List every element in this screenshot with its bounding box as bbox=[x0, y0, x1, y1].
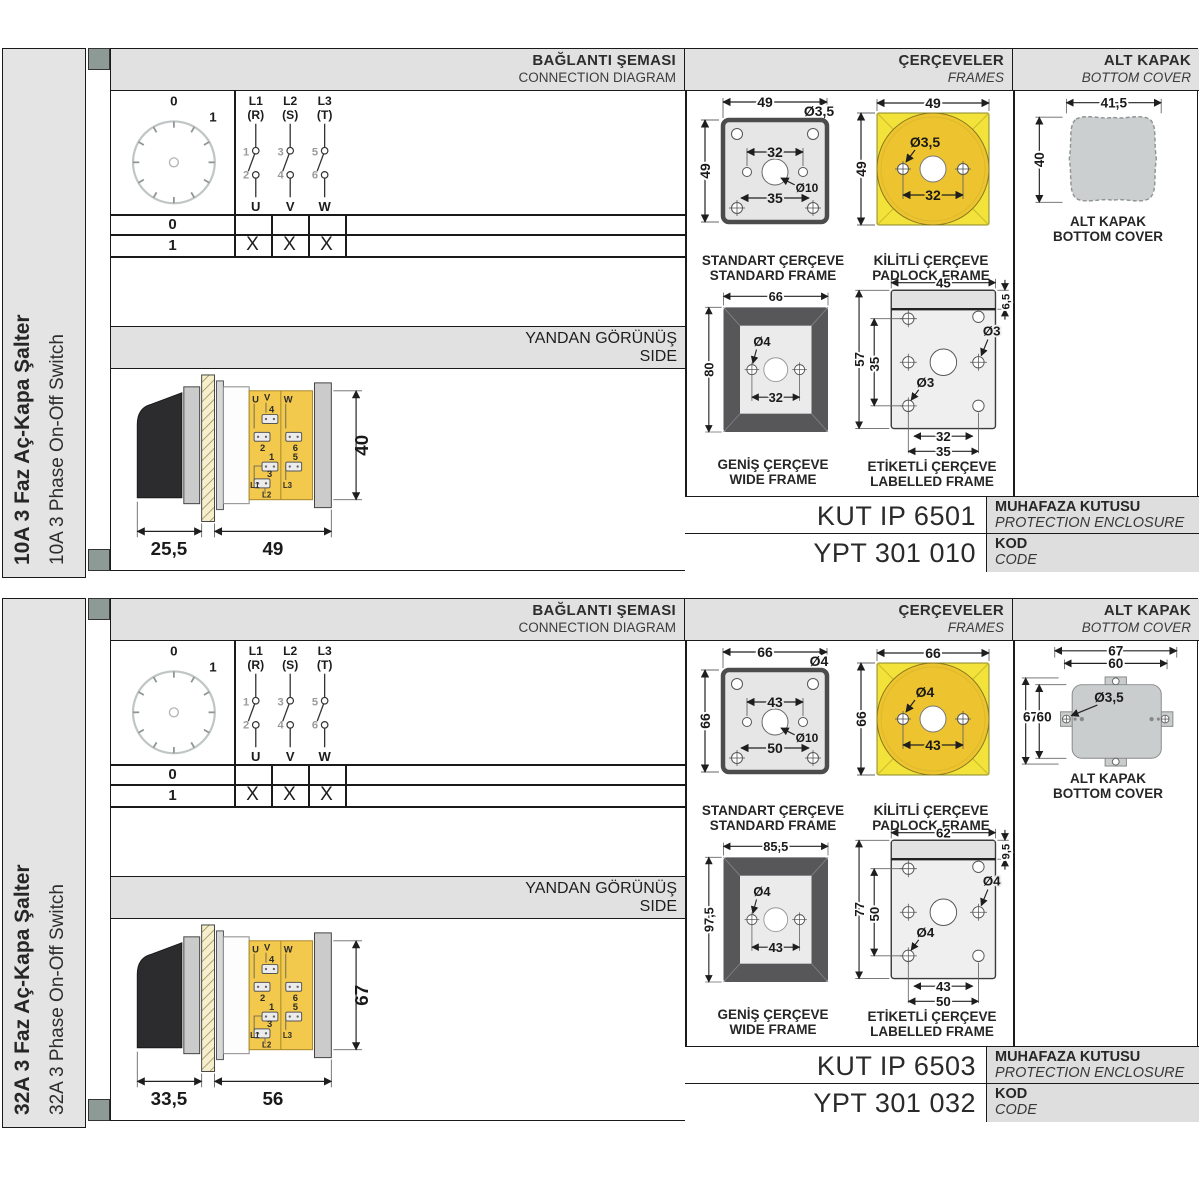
caption-en: LABELLED FRAME bbox=[847, 1024, 1017, 1039]
dim-slot: 50 bbox=[936, 994, 951, 1007]
table-cell bbox=[308, 764, 345, 784]
dial-drawing: 0 1 bbox=[113, 93, 233, 213]
dim-pitch: 43 bbox=[925, 737, 941, 753]
table-cell: X bbox=[271, 784, 308, 806]
caption-en: WIDE FRAME bbox=[693, 472, 853, 487]
bottom-cover-drawing: 41,5 40 bbox=[1016, 94, 1200, 212]
caption-tr: ETİKETLİ ÇERÇEVE bbox=[847, 1009, 1017, 1024]
dim-hole: Ø4 bbox=[983, 874, 1001, 889]
dim-width: 85,5 bbox=[763, 839, 788, 854]
terminal-label: L1 bbox=[250, 1031, 260, 1040]
label-tr: MUHAFAZA KUTUSU bbox=[995, 499, 1199, 515]
table-cell bbox=[271, 764, 308, 784]
dim-slot: 35 bbox=[936, 444, 951, 457]
phase-name: L1 bbox=[249, 94, 263, 108]
terminal-number: 1 bbox=[243, 146, 249, 158]
dim-hole: Ø4 bbox=[753, 334, 771, 349]
standard-frame-drawing: 49 Ø3,5 32 Ø10 35 49 bbox=[693, 94, 853, 244]
terminal-label: V bbox=[264, 942, 271, 953]
labelled-frame-drawing: 62 9,5 77 50 Ø4 Ø4 43 50 bbox=[847, 827, 1017, 1007]
dim-hole: Ø4 bbox=[916, 684, 935, 700]
dim-height: 97,5 bbox=[701, 907, 716, 932]
dim-pitch: 32 bbox=[769, 390, 783, 405]
dim-width: 62 bbox=[936, 827, 951, 840]
section-header-cover: ALT KAPAK BOTTOM COVER bbox=[1013, 599, 1199, 641]
phase-name: L2 bbox=[283, 94, 297, 108]
binder-tab bbox=[88, 598, 110, 620]
phase-alt: (S) bbox=[282, 658, 298, 672]
header-en: SIDE bbox=[111, 898, 677, 916]
table-row-label: 1 bbox=[111, 784, 234, 806]
dim-strip: 9,5 bbox=[1001, 844, 1013, 860]
caption-tr: GENİŞ ÇERÇEVE bbox=[693, 1007, 853, 1022]
dim-height: 66 bbox=[697, 713, 713, 729]
section-header-connection: BAĞLANTI ŞEMASI CONNECTION DIAGRAM bbox=[111, 599, 685, 641]
table-cell bbox=[234, 214, 271, 234]
load-label: U bbox=[251, 749, 260, 764]
dim-width: 66 bbox=[769, 289, 783, 304]
dim-pitch: 43 bbox=[936, 979, 951, 994]
dim-height: 49 bbox=[853, 161, 869, 177]
terminal-number: 3 bbox=[277, 146, 283, 158]
dim-hole: Ø4 bbox=[753, 884, 771, 899]
caption-tr: ETİKETLİ ÇERÇEVE bbox=[847, 459, 1017, 474]
dim-slot: 50 bbox=[767, 740, 783, 756]
terminal-label: L3 bbox=[283, 481, 293, 490]
wide-frame-drawing: 85,5 Ø4 43 97,5 bbox=[693, 839, 853, 1004]
terminal-number: 2 bbox=[243, 170, 249, 182]
header-en: FRAMES bbox=[685, 620, 1004, 635]
table-line bbox=[345, 214, 347, 256]
load-label: V bbox=[286, 749, 295, 764]
terminal-label: L3 bbox=[283, 1031, 293, 1040]
code-value: YPT 301 010 bbox=[685, 534, 986, 572]
terminal-label: V bbox=[264, 392, 271, 403]
caption-en: BOTTOM COVER bbox=[1016, 229, 1200, 244]
phase-alt: (R) bbox=[247, 658, 264, 672]
header-en: BOTTOM COVER bbox=[1013, 70, 1191, 85]
table-line bbox=[345, 764, 347, 806]
header-tr: ÇERÇEVELER bbox=[685, 602, 1004, 619]
table-cell bbox=[234, 764, 271, 784]
code-label: KOD CODE bbox=[986, 1084, 1199, 1122]
table-cell: X bbox=[234, 784, 271, 806]
table-cell bbox=[308, 214, 345, 234]
table-row-label: 1 bbox=[111, 234, 234, 256]
dim-handle: 33,5 bbox=[151, 1088, 188, 1109]
dim-height: 67 bbox=[351, 985, 372, 1006]
dim-center-hole: Ø10 bbox=[796, 731, 819, 745]
phase-alt: (R) bbox=[247, 108, 264, 122]
terminal-number: 5 bbox=[312, 696, 318, 708]
dim-width-inner: 60 bbox=[1108, 656, 1123, 671]
code-row: YPT 301 010 KOD CODE bbox=[685, 533, 1199, 572]
enclosure-label: MUHAFAZA KUTUSU PROTECTION ENCLOSURE bbox=[986, 497, 1199, 533]
sidebar-product-label: 10A 3 Faz Aç-Kapa Şalter 10A 3 Phase On-… bbox=[2, 48, 86, 578]
dim-pitch: 32 bbox=[936, 429, 951, 444]
frame-caption: ETİKETLİ ÇERÇEVE LABELLED FRAME bbox=[847, 1009, 1017, 1039]
binder-tab bbox=[88, 1099, 110, 1121]
caption-en: LABELLED FRAME bbox=[847, 474, 1017, 489]
terminal-label: 1 bbox=[269, 1001, 274, 1012]
dim-height: 40 bbox=[1032, 152, 1047, 167]
terminal-label: L2 bbox=[262, 491, 272, 500]
product-title-en: 32A 3 Phase On-Off Switch bbox=[47, 599, 69, 1127]
phase-name: L3 bbox=[318, 94, 332, 108]
wide-frame-drawing: 66 Ø4 32 80 bbox=[693, 289, 853, 454]
terminal-label: 2 bbox=[260, 992, 265, 1003]
enclosure-row: KUT IP 6503 MUHAFAZA KUTUSU PROTECTION E… bbox=[685, 1046, 1199, 1083]
header-en: SIDE bbox=[111, 348, 677, 366]
code-row: YPT 301 032 KOD CODE bbox=[685, 1083, 1199, 1122]
table-line bbox=[111, 256, 685, 258]
frame-caption: GENİŞ ÇERÇEVE WIDE FRAME bbox=[693, 1007, 853, 1037]
header-en: BOTTOM COVER bbox=[1013, 620, 1191, 635]
terminal-label: 2 bbox=[260, 442, 265, 453]
product-title-tr: 10A 3 Faz Aç-Kapa Şalter bbox=[11, 49, 35, 577]
phase-alt: (S) bbox=[282, 108, 298, 122]
dim-pitch: 43 bbox=[767, 694, 783, 710]
header-tr: ALT KAPAK bbox=[1013, 602, 1191, 619]
label-tr: MUHAFAZA KUTUSU bbox=[995, 1049, 1199, 1065]
terminal-number: 4 bbox=[277, 720, 284, 732]
dim-width: 66 bbox=[757, 644, 773, 660]
dim-hole: Ø4 bbox=[917, 925, 935, 940]
dim-hole: Ø3 bbox=[917, 375, 935, 390]
standard-frame-drawing: 66 Ø4 43 Ø10 50 66 bbox=[693, 644, 853, 794]
dim-center-hole: Ø10 bbox=[796, 181, 819, 195]
load-label: W bbox=[318, 749, 331, 764]
dim-body: 56 bbox=[262, 1088, 283, 1109]
terminal-number: 6 bbox=[312, 170, 318, 182]
load-label: V bbox=[286, 199, 295, 214]
terminal-label: L2 bbox=[262, 1041, 272, 1050]
enclosure-value: KUT IP 6501 bbox=[685, 497, 986, 533]
dim-height: 66 bbox=[853, 711, 869, 727]
section-header-frames: ÇERÇEVELER FRAMES bbox=[685, 49, 1013, 91]
dial-pos-on: 1 bbox=[209, 109, 217, 124]
product-title-tr: 32A 3 Faz Aç-Kapa Şalter bbox=[11, 599, 35, 1127]
terminal-label: 1 bbox=[269, 451, 274, 462]
terminal-label: 4 bbox=[269, 954, 275, 965]
enclosure-label: MUHAFAZA KUTUSU PROTECTION ENCLOSURE bbox=[986, 1047, 1199, 1083]
dim-width: 45 bbox=[936, 277, 951, 290]
table-cell: X bbox=[271, 234, 308, 256]
caption-tr: KİLİTLİ ÇERÇEVE bbox=[851, 253, 1011, 268]
dim-body: 49 bbox=[262, 538, 283, 559]
caption-tr: KİLİTLİ ÇERÇEVE bbox=[851, 803, 1011, 818]
caption-tr: STANDART ÇERÇEVE bbox=[693, 803, 853, 818]
load-label: U bbox=[251, 199, 260, 214]
dim-inner-height: 50 bbox=[867, 907, 882, 922]
table-cell: X bbox=[308, 234, 345, 256]
caption-en: WIDE FRAME bbox=[693, 1022, 853, 1037]
dim-height-inner: 60 bbox=[1037, 709, 1052, 724]
dim-inner-height: 35 bbox=[867, 357, 882, 372]
dim-width: 66 bbox=[925, 645, 941, 661]
labelled-frame-drawing: 45 6,5 57 35 Ø3 Ø3 32 35 bbox=[847, 277, 1017, 457]
table-cell: X bbox=[234, 234, 271, 256]
dim-width: 41,5 bbox=[1101, 96, 1128, 111]
label-en: CODE bbox=[995, 552, 1199, 568]
label-en: PROTECTION ENCLOSURE bbox=[995, 515, 1199, 531]
dim-height: 49 bbox=[697, 163, 713, 179]
datasheet-main: BAĞLANTI ŞEMASI CONNECTION DIAGRAM ÇERÇE… bbox=[110, 48, 1198, 571]
dim-height: 57 bbox=[852, 352, 867, 367]
table-cell: X bbox=[308, 784, 345, 806]
caption-en: BOTTOM COVER bbox=[1016, 786, 1200, 801]
caption-tr: GENİŞ ÇERÇEVE bbox=[693, 457, 853, 472]
dim-height: 77 bbox=[852, 902, 867, 917]
product-panel-32a: 32A 3 Faz Aç-Kapa Şalter 32A 3 Phase On-… bbox=[0, 598, 1200, 1128]
frame-caption: GENİŞ ÇERÇEVE WIDE FRAME bbox=[693, 457, 853, 487]
label-en: PROTECTION ENCLOSURE bbox=[995, 1065, 1199, 1081]
section-header-cover: ALT KAPAK BOTTOM COVER bbox=[1013, 49, 1199, 91]
enclosure-row: KUT IP 6501 MUHAFAZA KUTUSU PROTECTION E… bbox=[685, 496, 1199, 533]
side-view-drawing: U V 4 2 1 3 L1 L2 W 6 5 L3 40 25,5 49 bbox=[123, 371, 408, 569]
dial-drawing: 0 1 bbox=[113, 643, 233, 763]
dial-pos-on: 1 bbox=[209, 659, 217, 674]
dial-pos-off: 0 bbox=[170, 93, 177, 108]
binder-tab bbox=[88, 549, 110, 571]
terminal-number: 3 bbox=[277, 696, 283, 708]
phase-name: L2 bbox=[283, 644, 297, 658]
frame-caption: ETİKETLİ ÇERÇEVE LABELLED FRAME bbox=[847, 459, 1017, 489]
enclosure-value: KUT IP 6503 bbox=[685, 1047, 986, 1083]
terminal-number: 4 bbox=[277, 170, 284, 182]
label-tr: KOD bbox=[995, 1086, 1199, 1102]
terminal-label: 5 bbox=[293, 1001, 298, 1012]
label-tr: KOD bbox=[995, 536, 1199, 552]
dim-pitch: 43 bbox=[769, 940, 783, 955]
load-label: W bbox=[318, 199, 331, 214]
dial-pos-off: 0 bbox=[170, 643, 177, 658]
terminal-number: 2 bbox=[243, 720, 249, 732]
table-row-label: 0 bbox=[111, 764, 234, 784]
table-row-label: 0 bbox=[111, 214, 234, 234]
phase-alt: (T) bbox=[317, 108, 332, 122]
terminal-label: U bbox=[252, 944, 259, 955]
cover-caption: ALT KAPAK BOTTOM COVER bbox=[1016, 771, 1200, 801]
section-header-side: YANDAN GÖRÜNÜŞ SIDE bbox=[111, 876, 685, 919]
dim-width: 49 bbox=[925, 95, 941, 111]
bottom-cover-drawing: 67 60 67 60 Ø3,5 bbox=[1016, 644, 1200, 768]
sidebar-product-label: 32A 3 Faz Aç-Kapa Şalter 32A 3 Phase On-… bbox=[2, 598, 86, 1128]
phase-alt: (T) bbox=[317, 658, 332, 672]
frame-caption: STANDART ÇERÇEVE STANDARD FRAME bbox=[693, 253, 853, 283]
dim-pitch: 32 bbox=[767, 144, 783, 160]
caption-tr: STANDART ÇERÇEVE bbox=[693, 253, 853, 268]
terminal-label: 4 bbox=[269, 404, 275, 415]
padlock-frame-drawing: 66 Ø4 43 66 bbox=[851, 645, 1011, 795]
caption-tr: ALT KAPAK bbox=[1016, 771, 1200, 786]
dim-hole: Ø3,5 bbox=[1094, 690, 1124, 705]
product-panel-10a: 10A 3 Faz Aç-Kapa Şalter 10A 3 Phase On-… bbox=[0, 48, 1200, 578]
dim-pitch: 32 bbox=[925, 187, 941, 203]
header-tr: ALT KAPAK bbox=[1013, 52, 1191, 69]
dim-hole: Ø3,5 bbox=[804, 103, 835, 119]
dim-hole: Ø3 bbox=[983, 324, 1001, 339]
caption-tr: ALT KAPAK bbox=[1016, 214, 1200, 229]
section-header-frames: ÇERÇEVELER FRAMES bbox=[685, 599, 1013, 641]
product-title-en: 10A 3 Phase On-Off Switch bbox=[47, 49, 69, 577]
header-en: FRAMES bbox=[685, 70, 1004, 85]
terminal-label: W bbox=[284, 944, 293, 955]
terminal-label: 5 bbox=[293, 451, 298, 462]
datasheet-main: BAĞLANTI ŞEMASI CONNECTION DIAGRAM ÇERÇE… bbox=[110, 598, 1198, 1121]
padlock-frame-drawing: 49 Ø3,5 32 49 bbox=[851, 95, 1011, 245]
contacts-drawing: L1 (R) 1 2 U L2 (S) 3 4 V L3 ( bbox=[237, 93, 349, 214]
caption-en: STANDARD FRAME bbox=[693, 818, 853, 833]
terminal-label: W bbox=[284, 394, 293, 405]
terminal-number: 6 bbox=[312, 720, 318, 732]
terminal-label: L1 bbox=[250, 481, 260, 490]
side-view-drawing: U V 4 2 1 3 L1 L2 W 6 5 L3 67 33,5 56 bbox=[123, 921, 408, 1119]
dim-handle: 25,5 bbox=[151, 538, 188, 559]
terminal-number: 5 bbox=[312, 146, 318, 158]
terminal-label: U bbox=[252, 394, 259, 405]
header-tr: YANDAN GÖRÜNÜŞ bbox=[111, 330, 677, 348]
dim-width: 49 bbox=[757, 94, 773, 110]
contacts-drawing: L1 (R) 1 2 U L2 (S) 3 4 V L3 ( bbox=[237, 643, 349, 764]
code-label: KOD CODE bbox=[986, 534, 1199, 572]
table-line bbox=[111, 806, 685, 808]
frame-caption: STANDART ÇERÇEVE STANDARD FRAME bbox=[693, 803, 853, 833]
label-en: CODE bbox=[995, 1102, 1199, 1118]
phase-name: L1 bbox=[249, 644, 263, 658]
phase-name: L3 bbox=[318, 644, 332, 658]
header-en: CONNECTION DIAGRAM bbox=[111, 620, 676, 635]
code-value: YPT 301 032 bbox=[685, 1084, 986, 1122]
caption-en: STANDARD FRAME bbox=[693, 268, 853, 283]
terminal-number: 1 bbox=[243, 696, 249, 708]
header-tr: YANDAN GÖRÜNÜŞ bbox=[111, 880, 677, 898]
header-en: CONNECTION DIAGRAM bbox=[111, 70, 676, 85]
section-header-connection: BAĞLANTI ŞEMASI CONNECTION DIAGRAM bbox=[111, 49, 685, 91]
cover-caption: ALT KAPAK BOTTOM COVER bbox=[1016, 214, 1200, 244]
header-tr: BAĞLANTI ŞEMASI bbox=[111, 602, 676, 619]
header-tr: ÇERÇEVELER bbox=[685, 52, 1004, 69]
terminal-label: 3 bbox=[267, 468, 272, 479]
dim-slot: 35 bbox=[767, 190, 783, 206]
dim-height: 40 bbox=[351, 435, 372, 456]
dim-hole: Ø4 bbox=[810, 653, 829, 669]
binder-tab bbox=[88, 48, 110, 70]
terminal-label: 3 bbox=[267, 1018, 272, 1029]
section-header-side: YANDAN GÖRÜNÜŞ SIDE bbox=[111, 326, 685, 369]
header-tr: BAĞLANTI ŞEMASI bbox=[111, 52, 676, 69]
dim-height: 80 bbox=[701, 363, 716, 377]
dim-strip: 6,5 bbox=[1001, 294, 1013, 310]
table-cell bbox=[271, 214, 308, 234]
dim-hole: Ø3,5 bbox=[910, 134, 941, 150]
